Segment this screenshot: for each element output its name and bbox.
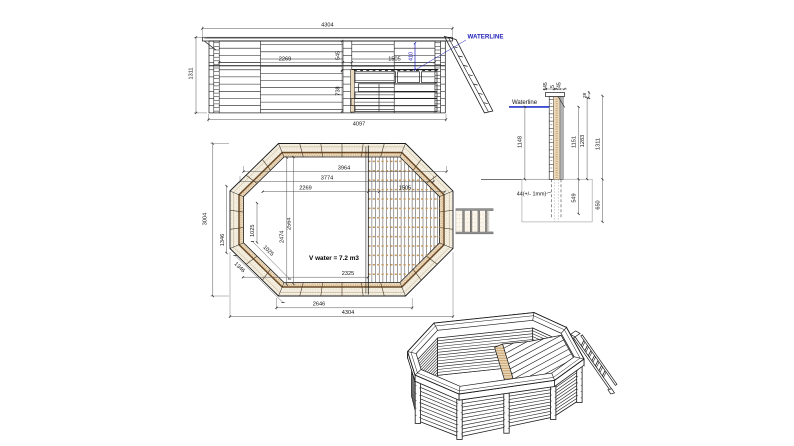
svg-text:145: 145 (543, 82, 549, 91)
svg-text:2564: 2564 (286, 217, 292, 229)
svg-text:Waterline: Waterline (512, 100, 538, 106)
svg-text:650: 650 (596, 200, 602, 209)
svg-text:1151: 1151 (572, 136, 578, 148)
svg-text:V water = 7.2 m3: V water = 7.2 m3 (309, 255, 359, 262)
svg-text:1505: 1505 (399, 185, 411, 191)
svg-text:2269: 2269 (279, 57, 291, 63)
svg-text:4097: 4097 (353, 122, 365, 128)
svg-text:2325: 2325 (342, 271, 354, 277)
svg-text:549: 549 (572, 193, 578, 202)
svg-text:1148: 1148 (518, 136, 524, 148)
svg-text:4304: 4304 (342, 310, 354, 316)
svg-text:2474: 2474 (280, 231, 286, 243)
svg-text:44(+/- 1mm): 44(+/- 1mm) (517, 191, 547, 197)
svg-text:545: 545 (336, 51, 342, 60)
svg-text:3964: 3964 (338, 165, 350, 171)
svg-text:4304: 4304 (321, 23, 333, 29)
svg-text:3774: 3774 (321, 175, 333, 181)
svg-text:2269: 2269 (299, 185, 311, 191)
svg-text:1283: 1283 (580, 135, 586, 147)
svg-text:3004: 3004 (203, 213, 209, 225)
svg-text:145: 145 (557, 82, 563, 91)
svg-text:1025: 1025 (250, 224, 256, 236)
svg-text:5: 5 (550, 85, 556, 88)
svg-text:1346: 1346 (220, 234, 226, 246)
svg-text:WATERLINE: WATERLINE (468, 34, 504, 41)
svg-text:1311: 1311 (596, 138, 602, 150)
svg-text:1311: 1311 (189, 67, 195, 79)
svg-text:410: 410 (409, 52, 415, 61)
svg-text:2646: 2646 (313, 301, 325, 307)
svg-text:738: 738 (336, 86, 342, 95)
svg-text:1505: 1505 (388, 57, 400, 63)
